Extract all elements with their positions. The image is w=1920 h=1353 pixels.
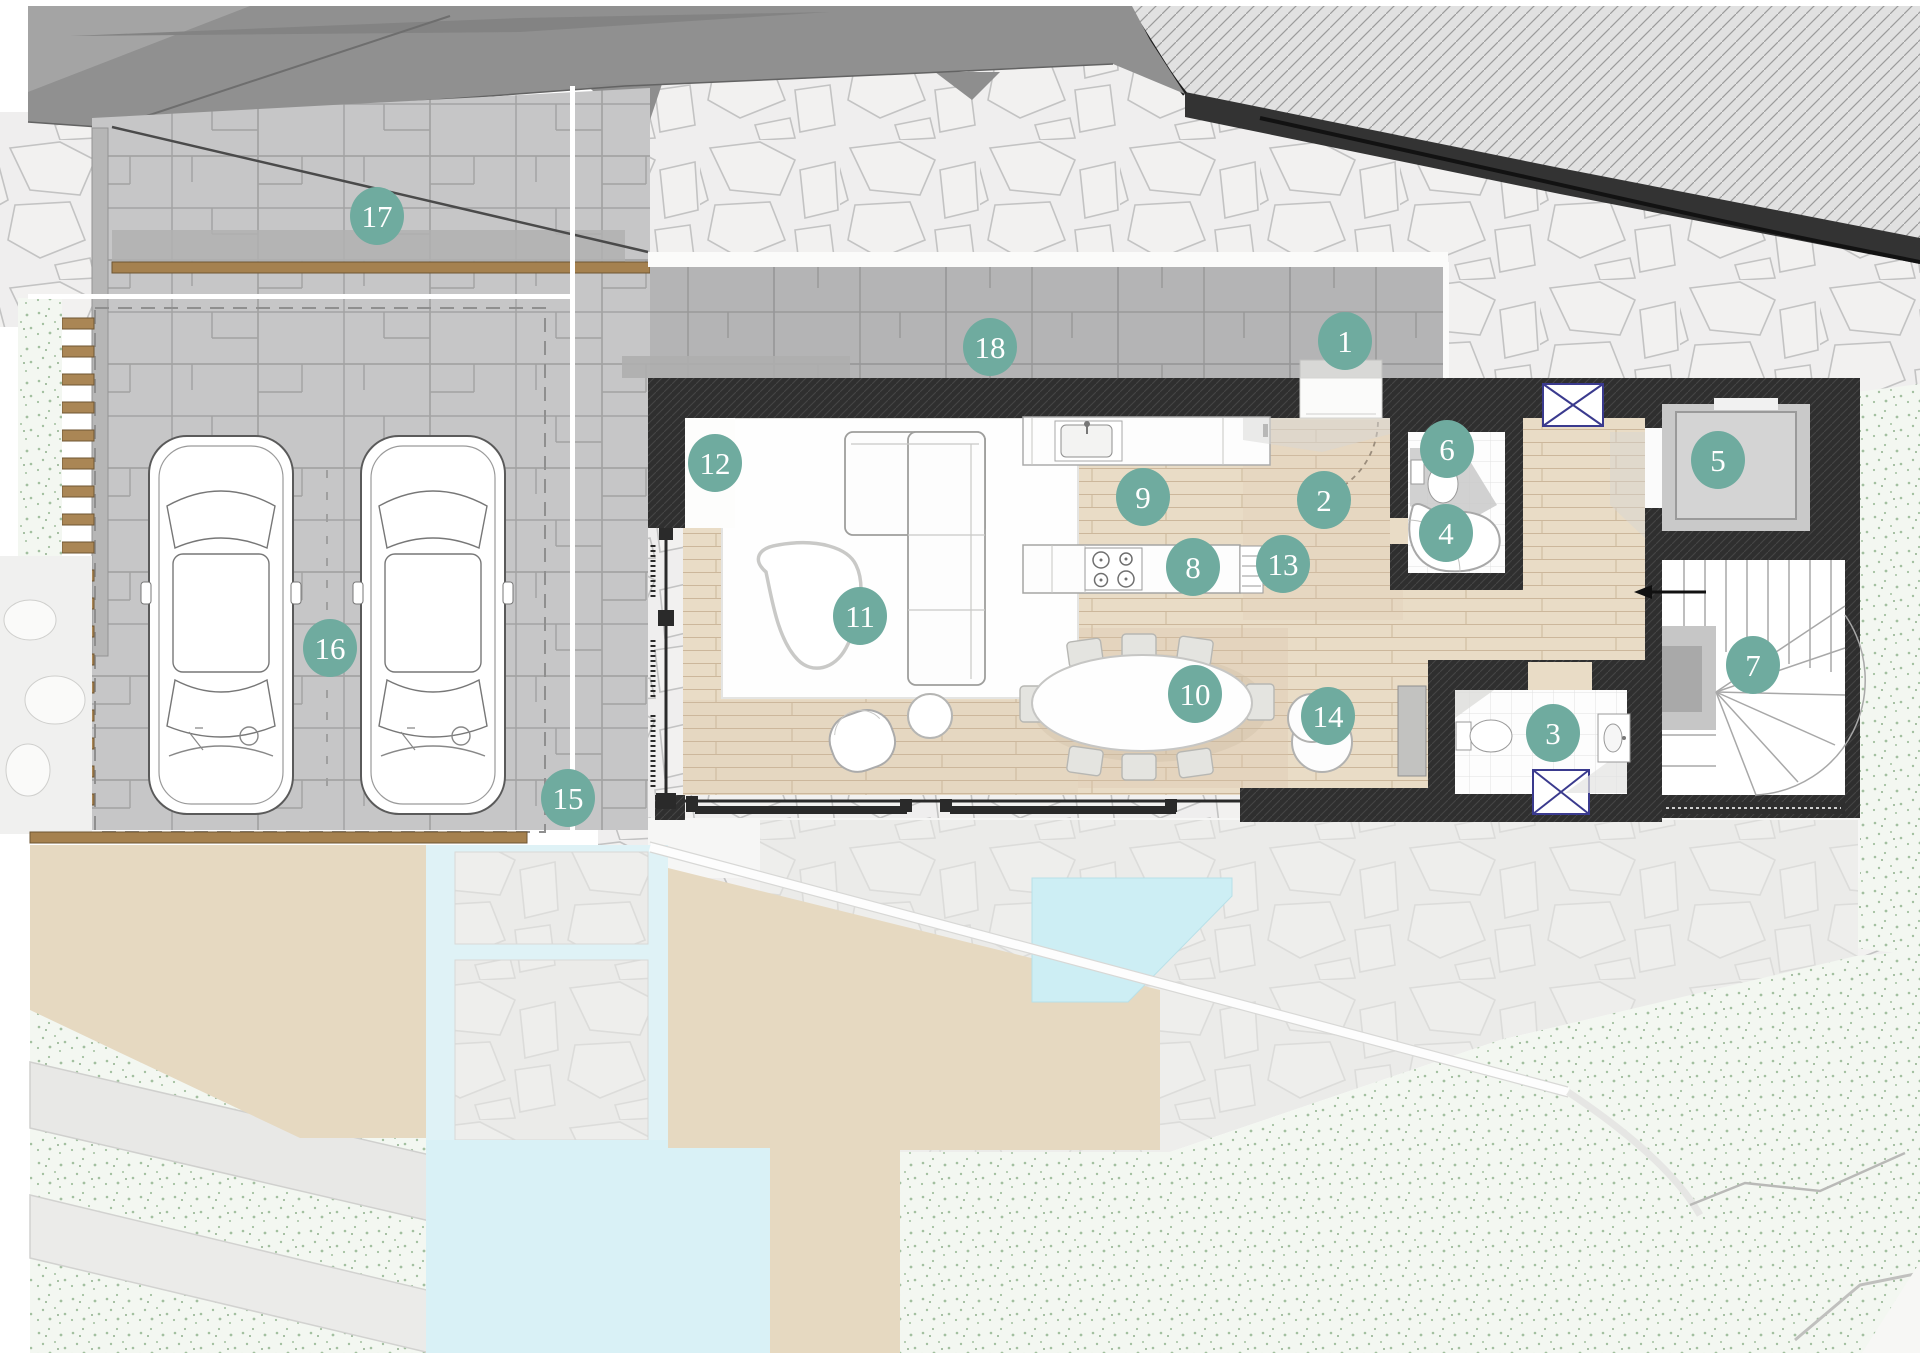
floor-plan-canvas: 123456789101112131415161718	[0, 0, 1920, 1353]
sliding-door-panel-2	[950, 806, 1176, 814]
roof-edge-line-vertical	[570, 86, 575, 832]
plan-marker-18[interactable]: 18	[963, 318, 1017, 376]
roof-edge-white-top	[648, 252, 1448, 267]
bathroom-main-door-opening	[1528, 662, 1592, 690]
site-plan-svg: 123456789101112131415161718	[0, 0, 1920, 1353]
bathroom-small-door-opening	[1390, 518, 1408, 544]
sofa-arm	[908, 432, 985, 685]
marker-label: 13	[1268, 547, 1299, 582]
marker-label: 18	[975, 330, 1006, 365]
window-symbol-top	[1543, 384, 1603, 426]
marker-label: 4	[1438, 516, 1454, 551]
plan-marker-10[interactable]: 10	[1168, 665, 1222, 723]
plan-marker-7[interactable]: 7	[1726, 636, 1780, 694]
toilet-tank	[1411, 460, 1424, 484]
pouf	[908, 694, 952, 738]
plan-marker-5[interactable]: 5	[1691, 431, 1745, 489]
plan-marker-16[interactable]: 16	[303, 619, 357, 677]
elevator-door-gap	[1645, 428, 1662, 508]
house	[648, 360, 1865, 822]
marker-label: 16	[315, 631, 346, 666]
marker-label: 12	[700, 446, 731, 481]
marker-label: 7	[1745, 648, 1761, 683]
marker-label: 15	[553, 781, 584, 816]
car-left	[141, 436, 301, 814]
plan-marker-1[interactable]: 1	[1318, 312, 1372, 370]
plan-marker-2[interactable]: 2	[1297, 471, 1351, 529]
wall-right	[1845, 378, 1860, 818]
cooktop	[1085, 548, 1142, 590]
roof-edge-line-horizontal	[28, 294, 572, 299]
pool	[426, 1140, 770, 1353]
marker-label: 3	[1545, 716, 1561, 751]
wall-bottom-solid	[1240, 788, 1462, 822]
plan-marker-13[interactable]: 13	[1256, 535, 1310, 593]
marker-label: 8	[1185, 550, 1201, 585]
marker-label: 9	[1135, 480, 1151, 515]
car-right	[353, 436, 513, 814]
plan-marker-4[interactable]: 4	[1419, 504, 1473, 562]
plan-marker-12[interactable]: 12	[688, 434, 742, 492]
marker-label: 10	[1180, 677, 1211, 712]
marker-label: 17	[362, 199, 393, 234]
plan-marker-8[interactable]: 8	[1166, 538, 1220, 596]
plan-marker-14[interactable]: 14	[1301, 687, 1355, 745]
marker-label: 6	[1439, 432, 1455, 467]
wood-deck-strip-top	[112, 262, 650, 273]
plan-marker-9[interactable]: 9	[1116, 468, 1170, 526]
toilet-bowl	[1470, 720, 1512, 752]
pool-platform-2	[455, 960, 648, 1140]
wood-deck-strip-bottom	[30, 832, 527, 843]
marker-label: 1	[1337, 324, 1353, 359]
marker-label: 2	[1316, 483, 1332, 518]
sliding-door-panel-1	[695, 806, 907, 814]
plan-marker-6[interactable]: 6	[1420, 420, 1474, 478]
rock-outcrops-left	[0, 556, 92, 834]
lower-landscape	[30, 818, 1920, 1353]
door-leaf	[1398, 686, 1426, 776]
gravel-strip-right	[1856, 384, 1920, 956]
plan-marker-11[interactable]: 11	[833, 587, 887, 645]
pool-platform-1	[455, 852, 648, 944]
plan-marker-15[interactable]: 15	[541, 769, 595, 827]
marker-label: 14	[1313, 699, 1345, 734]
plan-marker-3[interactable]: 3	[1526, 704, 1580, 762]
toilet-tank	[1456, 722, 1471, 750]
plan-marker-17[interactable]: 17	[350, 187, 404, 245]
wall-left	[648, 378, 685, 528]
marker-label: 11	[845, 599, 875, 634]
marker-label: 5	[1710, 443, 1726, 478]
